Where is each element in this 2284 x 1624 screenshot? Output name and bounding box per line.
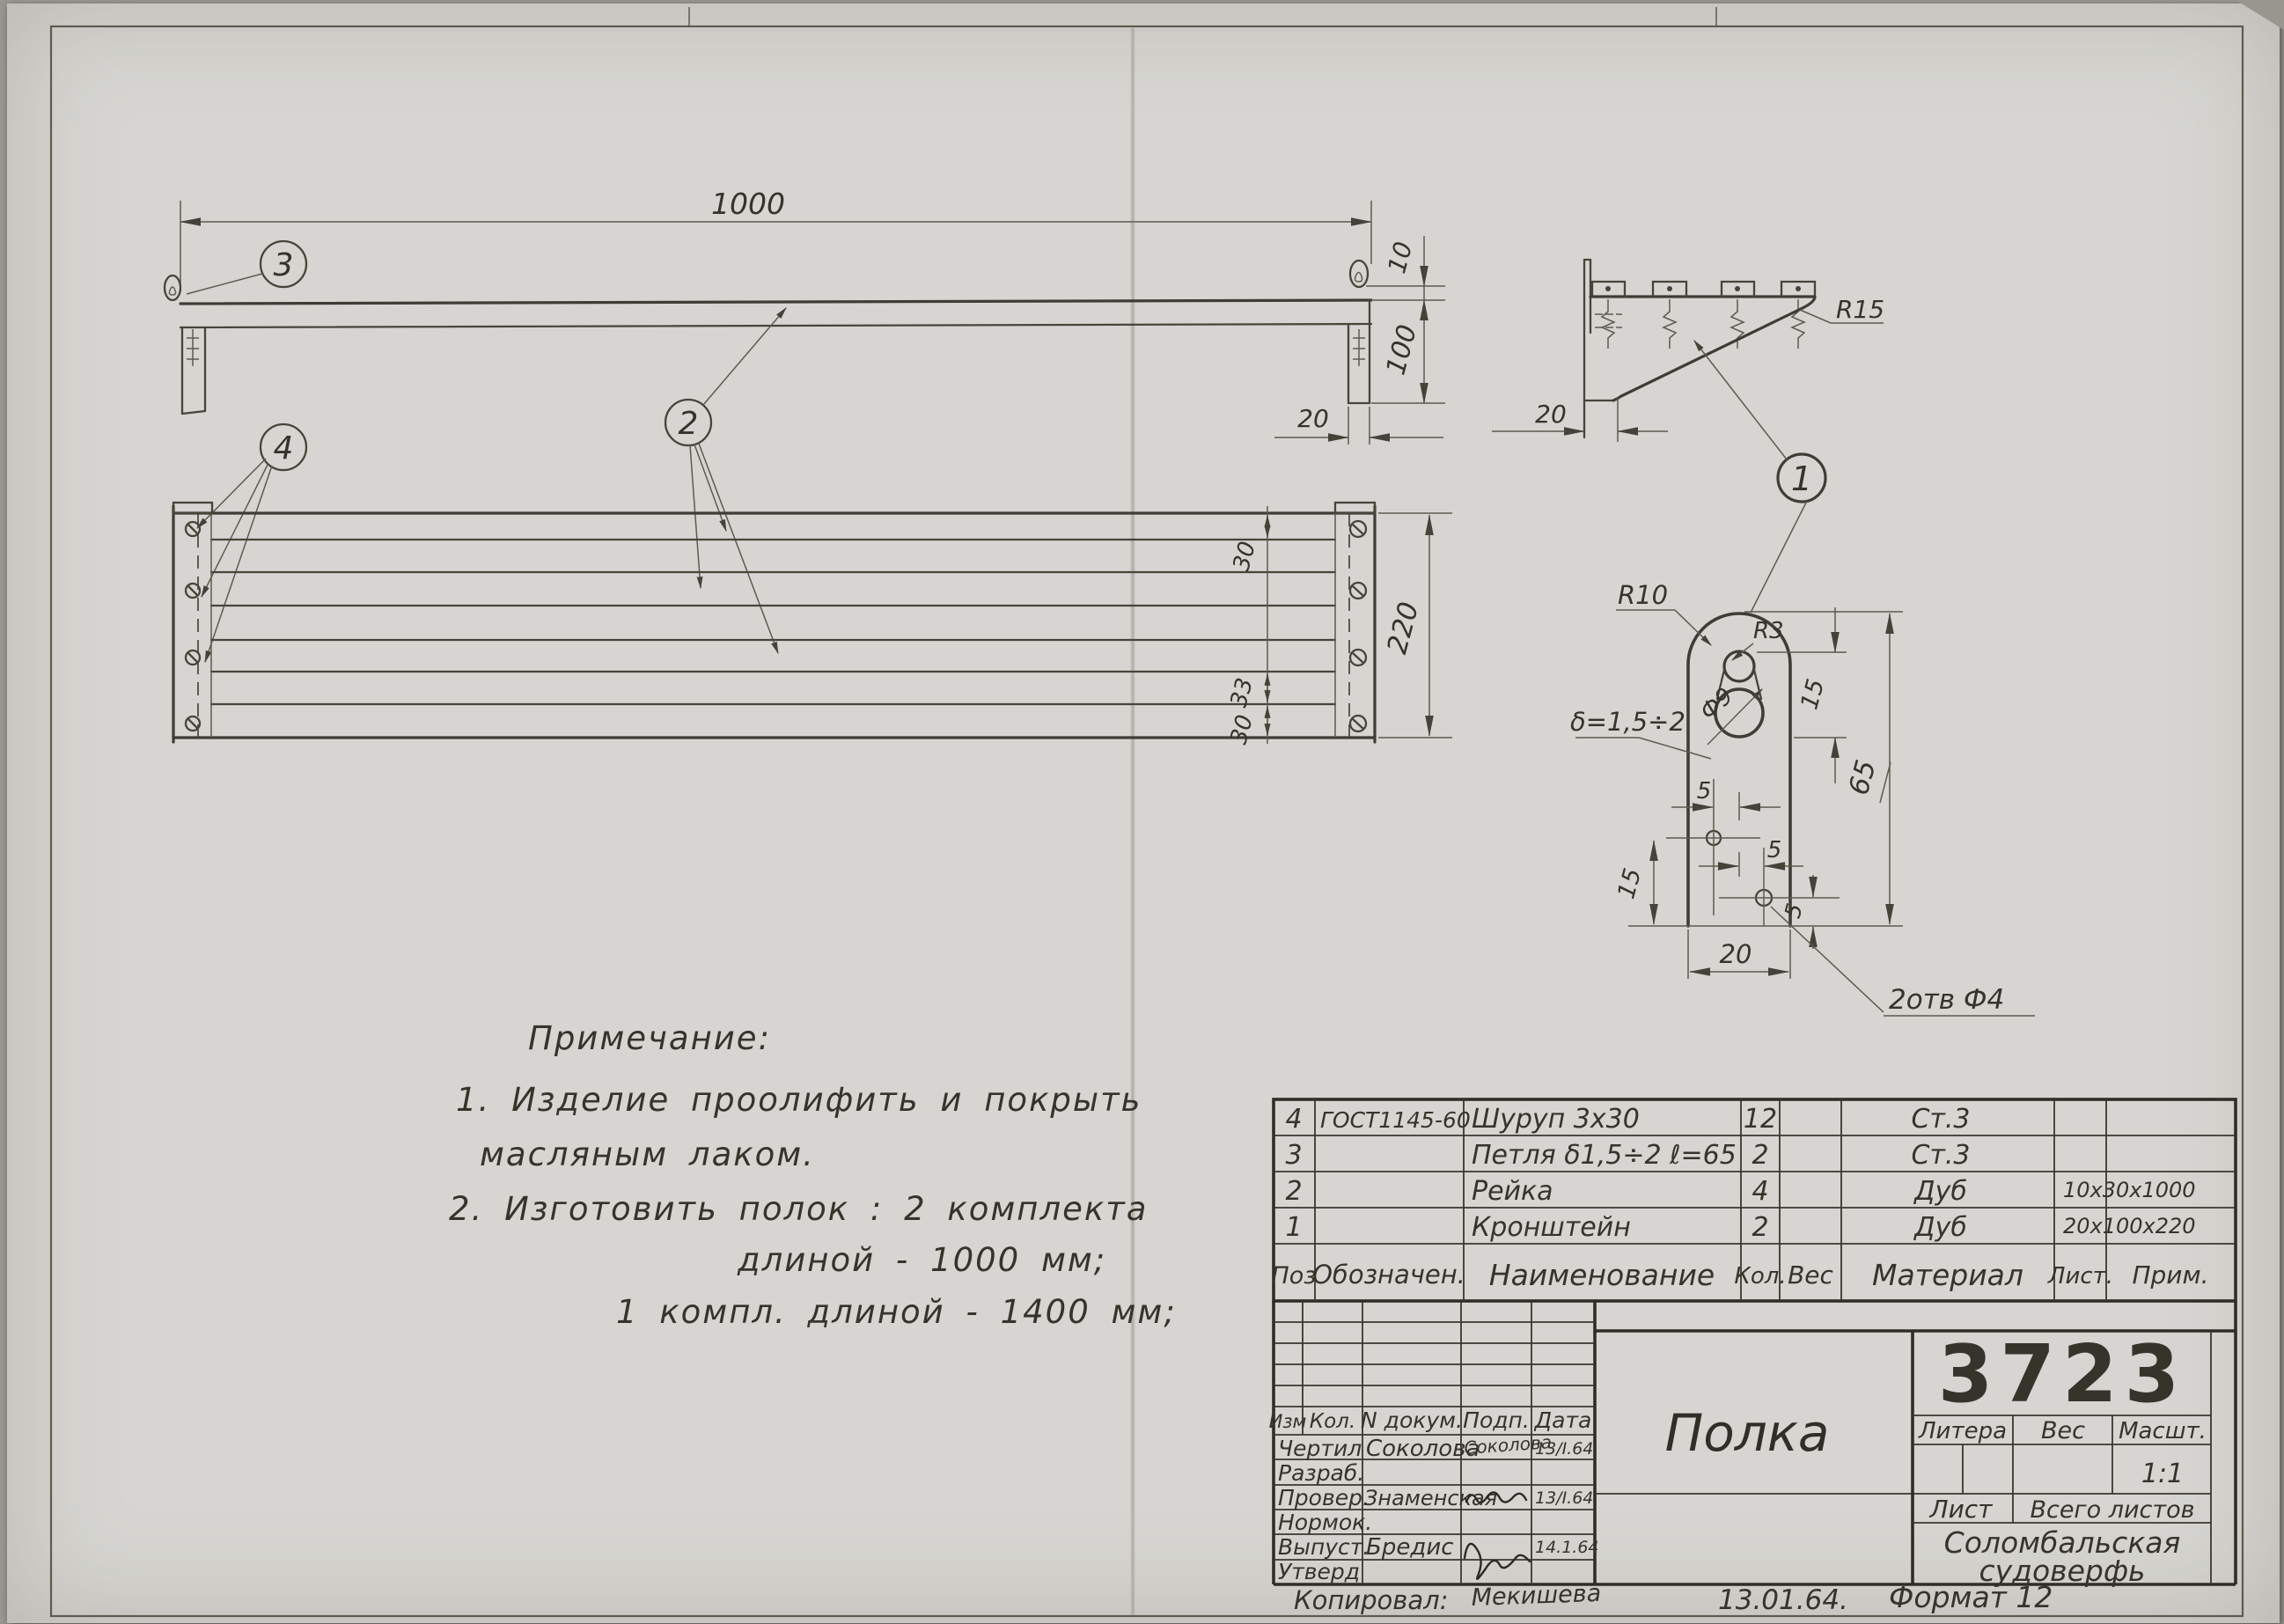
- dim-10-100: 10 100: [1366, 236, 1445, 403]
- hole-left: [1666, 779, 1760, 915]
- date-chertil: 13/I.64: [1535, 1439, 1593, 1459]
- plan-view: 220 30 33 30: [173, 503, 1452, 747]
- rev-izm: Изм: [1269, 1411, 1307, 1432]
- screw-icon: [186, 584, 200, 598]
- balloon-2-label: 2: [679, 406, 699, 442]
- row1-name: Шуруп 3х30: [1472, 1104, 1640, 1135]
- revision-header: Изм Кол. N докум. Подп. Дата: [1269, 1407, 1592, 1433]
- header-qty: Кол.: [1734, 1263, 1786, 1290]
- dim-1000: 1000: [180, 187, 1371, 292]
- notes-line3: 2. Изготовить полок : 2 комплекта: [449, 1190, 1148, 1228]
- balloon-4-label: 4: [274, 430, 294, 467]
- side-dim-20: 20: [1535, 400, 1567, 429]
- detail-r3: R3: [1753, 618, 1784, 644]
- screw-icon: [1350, 521, 1366, 537]
- row3-name: Рейка: [1472, 1176, 1553, 1207]
- detail-dim-5-left: 5: [1697, 778, 1712, 805]
- row4-pos: 1: [1285, 1212, 1302, 1243]
- detail-r10: R10: [1618, 580, 1668, 610]
- rev-data: Дата: [1534, 1407, 1592, 1433]
- screw-icon: [186, 716, 200, 731]
- notes-heading: Примечание:: [528, 1019, 771, 1057]
- side-r15: R15: [1836, 295, 1884, 324]
- row3-material: Дуб: [1913, 1176, 1967, 1207]
- plan-right-bracket: [1335, 503, 1375, 742]
- detail-dim-20: 20: [1720, 939, 1752, 969]
- table-header-row: Поз Обозначен. Наименование Кол. Вес Мат…: [1271, 1258, 2208, 1292]
- detail-dim-65: 65: [1843, 757, 1883, 798]
- front-view: 1000: [165, 187, 1445, 662]
- dim-20-detail: 20: [1688, 930, 1790, 979]
- detail-dim-15-left: 15: [1612, 865, 1647, 901]
- vsego-label: Всего листов: [2030, 1496, 2194, 1524]
- blueprint-sheet: 1000: [0, 0, 2284, 1624]
- plan-slats: [211, 540, 1335, 704]
- plan-dim-30-bottom: 30: [1226, 712, 1260, 747]
- balloon-3-label: 3: [274, 247, 294, 283]
- balloon-2: 2: [665, 308, 786, 653]
- notes-line2: масляным лаком.: [480, 1135, 815, 1173]
- copy-date: 13.01.64.: [1718, 1584, 1848, 1616]
- copied-label: Копировал:: [1294, 1585, 1448, 1615]
- detail-dim-5-right: 5: [1767, 837, 1782, 863]
- front-right-bracket: [1348, 300, 1370, 403]
- plan-dim-30-top: 30: [1229, 539, 1262, 574]
- front-dim-1000: 1000: [711, 187, 785, 221]
- side-view: 20 R15 1: [1492, 260, 1884, 613]
- header-pos: Поз: [1271, 1262, 1316, 1290]
- notes-line4: длиной - 1000 мм;: [737, 1241, 1106, 1279]
- front-dim-20: 20: [1297, 404, 1329, 433]
- drawing-number: 3723: [1938, 1328, 2187, 1421]
- signature-vypust: [1465, 1544, 1530, 1579]
- row1-designation: ГОСТ1145-60: [1320, 1107, 1471, 1133]
- table-row: 4 ГОСТ1145-60 Шуруп 3х30 12 Ст.3: [1285, 1104, 1970, 1135]
- plan-dim-220: 220: [1381, 599, 1425, 657]
- dim-20-side: 20: [1492, 398, 1668, 442]
- balloon-3: 3: [187, 241, 306, 294]
- title-block: Изм Кол. N докум. Подп. Дата Чертил Разр…: [1269, 1301, 2236, 1588]
- rev-kol: Кол.: [1310, 1410, 1355, 1433]
- role-chertil: Чертил: [1278, 1436, 1362, 1461]
- role-normok: Нормок.: [1278, 1510, 1372, 1535]
- dim-15-left: 15: [1612, 841, 1654, 924]
- rev-ndokum: N докум.: [1361, 1407, 1463, 1433]
- front-left-loop: [165, 276, 180, 300]
- r3-callout: R3: [1732, 618, 1784, 660]
- detail-view: R10 R3 Ф9 δ=1,5÷2: [1570, 580, 2035, 1016]
- front-dim-10: 10: [1382, 239, 1418, 276]
- row3-pos: 2: [1285, 1176, 1302, 1207]
- dim-chain-30-33-30: 30 33 30: [1226, 506, 1267, 747]
- detail-holes-note: 2отв Ф4: [1889, 984, 2004, 1016]
- dim-20-front: 20: [1274, 404, 1443, 445]
- detail-dim-15-top: 15: [1796, 676, 1830, 712]
- list-label: Лист: [1929, 1495, 1994, 1524]
- notes-line1: 1. Изделие проолифить и покрыть: [456, 1081, 1142, 1119]
- rev-podp: Подп.: [1463, 1407, 1530, 1433]
- signature-rows: Чертил Разраб. Провер. Нормок. Выпуст. У…: [1274, 1431, 1599, 1584]
- header-weight: Вес: [1788, 1260, 1833, 1290]
- balloon-1: 1: [1694, 341, 1825, 613]
- front-dim-100: 100: [1381, 321, 1424, 378]
- screw-icon: [1350, 716, 1366, 731]
- litera-label: Литера: [1918, 1418, 2007, 1444]
- header-note: Прим.: [2132, 1260, 2208, 1290]
- header-name: Наименование: [1489, 1258, 1715, 1292]
- row1-qty: 12: [1744, 1104, 1777, 1135]
- row2-material: Ст.3: [1911, 1140, 1970, 1171]
- side-slat-sections: [1592, 282, 1815, 297]
- screw-icon: [186, 522, 200, 536]
- role-razrab: Разраб.: [1278, 1460, 1364, 1486]
- header-designation: Обозначен.: [1312, 1260, 1465, 1290]
- ves-label: Вес: [2041, 1417, 2085, 1444]
- row4-qty: 2: [1752, 1212, 1768, 1243]
- notes-line5: 1 компл. длиной - 1400 мм;: [616, 1293, 1177, 1331]
- table-row: 3 Петля δ1,5÷2 ℓ=65 2 Ст.3: [1285, 1140, 1970, 1171]
- row1-material: Ст.3: [1911, 1104, 1970, 1135]
- front-left-bracket: [182, 327, 205, 414]
- dim-220: 220: [1378, 513, 1452, 738]
- delta-callout: δ=1,5÷2: [1570, 707, 1711, 759]
- header-material: Материал: [1872, 1258, 2023, 1292]
- row3-note: 10х30х1000: [2063, 1178, 2196, 1202]
- parts-table: 4 ГОСТ1145-60 Шуруп 3х30 12 Ст.3 3 Петля…: [1271, 1099, 2236, 1301]
- name-bredis: Бредис: [1366, 1534, 1454, 1561]
- drawing-canvas: 1000: [0, 0, 2284, 1624]
- role-utverd: Утверд: [1278, 1559, 1360, 1584]
- row2-name: Петля δ1,5÷2 ℓ=65: [1472, 1140, 1737, 1171]
- format-note: Формат 12: [1889, 1580, 2053, 1614]
- holes-callout: 2отв Ф4: [1771, 907, 2035, 1016]
- product-title: Полка: [1665, 1403, 1830, 1463]
- name-znamenskaya: Знаменская: [1364, 1486, 1497, 1510]
- front-right-loop: [1350, 261, 1368, 287]
- dim-5-right: 5: [1699, 837, 1803, 877]
- role-vypust: Выпуст.: [1278, 1534, 1370, 1560]
- detail-delta: δ=1,5÷2: [1570, 707, 1685, 737]
- row3-qty: 4: [1752, 1176, 1768, 1207]
- role-prover: Провер.: [1278, 1485, 1370, 1510]
- notes-block: Примечание: 1. Изделие проолифить и покр…: [449, 1019, 1177, 1331]
- screw-icon: [1350, 583, 1366, 599]
- screw-icon: [1350, 650, 1366, 665]
- date-vypust: 14.1.64: [1535, 1538, 1599, 1557]
- row4-material: Дуб: [1913, 1212, 1967, 1243]
- balloon-1-label: 1: [1791, 459, 1812, 498]
- copied-signature: Мекишева: [1471, 1580, 1602, 1612]
- date-prover: 13/I.64: [1535, 1488, 1593, 1508]
- row2-pos: 3: [1285, 1140, 1302, 1171]
- header-sheet: Лист.: [2047, 1263, 2113, 1290]
- row4-note: 20х100х220: [2063, 1214, 2196, 1238]
- dim-5-bottom: 5: [1780, 875, 1813, 949]
- dim-65: 65: [1744, 612, 1903, 924]
- row4-name: Кронштейн: [1472, 1212, 1631, 1243]
- plan-left-bracket: [173, 503, 212, 742]
- row2-qty: 2: [1752, 1140, 1768, 1171]
- row1-pos: 4: [1285, 1104, 1302, 1135]
- screw-icon: [186, 650, 200, 665]
- masht-label: Масшт.: [2119, 1418, 2207, 1444]
- scale-value: 1:1: [2141, 1459, 2184, 1489]
- balloon-4: 4: [197, 424, 306, 662]
